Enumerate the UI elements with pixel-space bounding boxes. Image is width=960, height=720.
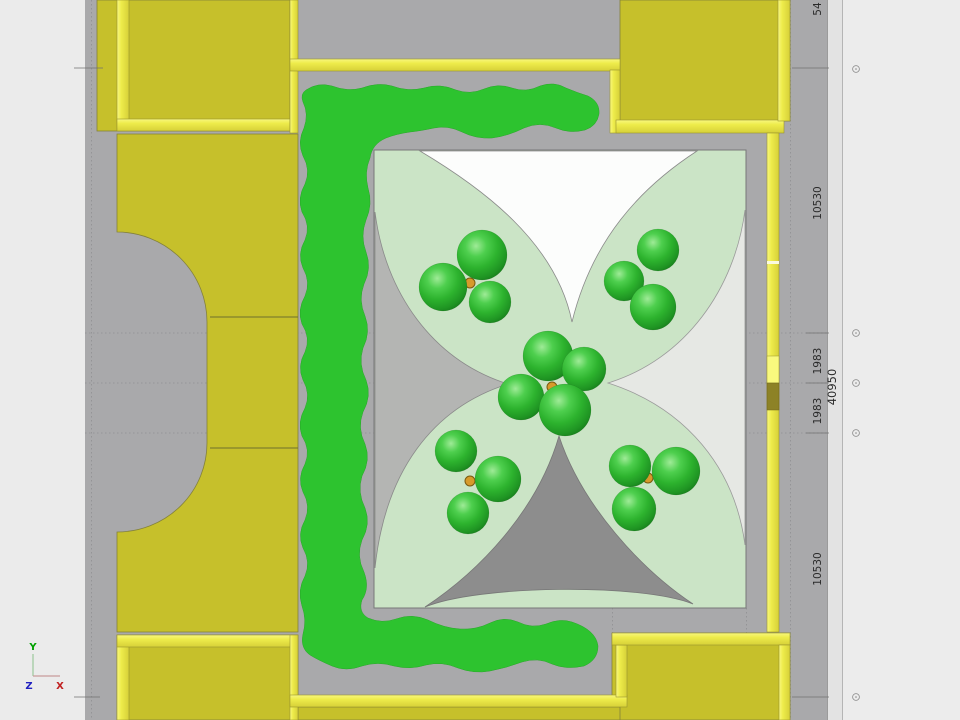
wall-segment-bright[interactable] (767, 356, 779, 383)
tree-canopy[interactable] (652, 447, 700, 495)
wall-joint-gap (767, 261, 779, 264)
dimension-label-top: 54 (812, 2, 824, 16)
axis-x-label: X (56, 681, 64, 692)
building-block-bottom-left[interactable] (117, 635, 298, 720)
right-margin (843, 0, 960, 720)
tree-canopy[interactable] (612, 487, 656, 531)
dimension-label-mid-lower: 1983 (812, 398, 824, 425)
wall-top-left-vertical[interactable] (117, 0, 129, 131)
wall-top-right-edge[interactable] (778, 0, 790, 121)
cad-window: 54 10530 1983 1983 10530 40950 Y Z X (0, 0, 960, 720)
tree-canopy[interactable] (469, 281, 511, 323)
tree-canopy[interactable] (498, 374, 544, 420)
dimension-label-mid-upper: 1983 (812, 348, 824, 375)
tree-canopy[interactable] (539, 384, 591, 436)
tree-canopy[interactable] (475, 456, 521, 502)
dimension-band (828, 0, 843, 720)
tree-canopy[interactable] (419, 263, 467, 311)
dimension-label-overall: 40950 (825, 369, 839, 406)
wall-segment-dark-olive[interactable] (767, 383, 779, 410)
wall-bottom-left-top[interactable] (117, 635, 298, 647)
tree-canopy[interactable] (630, 284, 676, 330)
tree-canopy[interactable] (457, 230, 507, 280)
axis-z-label: Z (25, 681, 32, 692)
wall-bottom-left-vertical[interactable] (117, 635, 129, 720)
tree-trunk[interactable] (465, 476, 475, 486)
tree-canopy[interactable] (435, 430, 477, 472)
wall-court-bottom[interactable] (290, 695, 627, 707)
building-block-bottom-right[interactable] (612, 633, 790, 720)
dimension-label-lower: 10530 (812, 552, 824, 585)
axis-y-label: Y (28, 642, 37, 653)
wall-top-right-bottom[interactable] (616, 120, 784, 133)
wall-bottom-right-top[interactable] (612, 633, 790, 645)
building-strip-bottom[interactable] (298, 707, 620, 720)
building-block-top-right[interactable] (620, 0, 790, 121)
viewport-3d[interactable]: 54 10530 1983 1983 10530 40950 Y Z X (0, 0, 960, 720)
wall-bottom-right-edge[interactable] (779, 645, 790, 720)
wall-court-bottom-step[interactable] (616, 645, 627, 697)
wall-top-left-bottom[interactable] (117, 119, 290, 131)
tree-canopy[interactable] (447, 492, 489, 534)
tree-canopy[interactable] (609, 445, 651, 487)
dimension-label-upper: 10530 (812, 186, 824, 219)
wall-court-top[interactable] (290, 59, 620, 71)
tree-canopy[interactable] (637, 229, 679, 271)
